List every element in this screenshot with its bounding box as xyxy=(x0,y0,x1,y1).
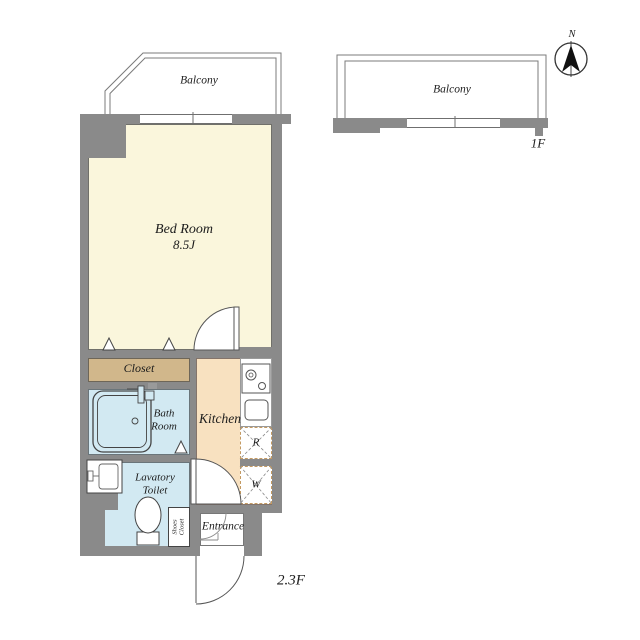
fridge-mark-label: R xyxy=(253,437,260,450)
balcony-main-label: Balcony xyxy=(180,74,218,87)
bathroom-label-line1: Bath xyxy=(154,407,175,419)
lavatory-label-line1: Lavatory xyxy=(135,471,175,483)
entrance-door xyxy=(196,556,244,604)
bathroom-label-line2: Room xyxy=(151,420,177,432)
kitchen-label: Kitchen xyxy=(199,411,241,427)
window-ticks xyxy=(193,112,455,128)
bath-door-marker xyxy=(175,441,187,453)
entrance-label: Entrance xyxy=(202,520,244,533)
bedroom-size: 8.5J xyxy=(173,237,195,252)
stove-icon xyxy=(242,364,270,393)
closet-door-markers xyxy=(103,338,175,350)
bathtub-icon xyxy=(93,383,157,452)
bathroom-label: Bath Room xyxy=(151,407,177,432)
toilet-icon xyxy=(135,497,161,545)
shoes-closet-label: Shoes Closet xyxy=(172,519,187,536)
shoes-closet-label-line2: Closet xyxy=(179,519,186,536)
bedroom-label: Bed Room 8.5J xyxy=(155,222,213,254)
balcony-1f-label: Balcony xyxy=(433,83,471,96)
closet-label: Closet xyxy=(124,362,155,376)
compass-north-label: N xyxy=(568,29,575,41)
floor-23f-label: 2.3F xyxy=(277,572,305,589)
shoes-closet-label-line1: Shoes xyxy=(172,519,179,534)
washer-mark-label: W xyxy=(251,479,260,492)
lavatory-label: Lavatory Toilet xyxy=(135,471,175,496)
lavatory-sink-icon xyxy=(87,460,122,493)
kitchen-sink-icon xyxy=(245,400,268,420)
bedroom-name: Bed Room xyxy=(155,222,213,237)
lavatory-label-line2: Toilet xyxy=(143,484,168,496)
compass-icon xyxy=(555,41,587,77)
floor-1f-label: 1F xyxy=(531,137,545,152)
kitchen-door xyxy=(191,459,241,504)
bedroom-door xyxy=(194,307,239,350)
plan-linework xyxy=(0,0,640,640)
floor-plan-canvas: Balcony Balcony Bed Room 8.5J Closet Bat… xyxy=(0,0,640,640)
